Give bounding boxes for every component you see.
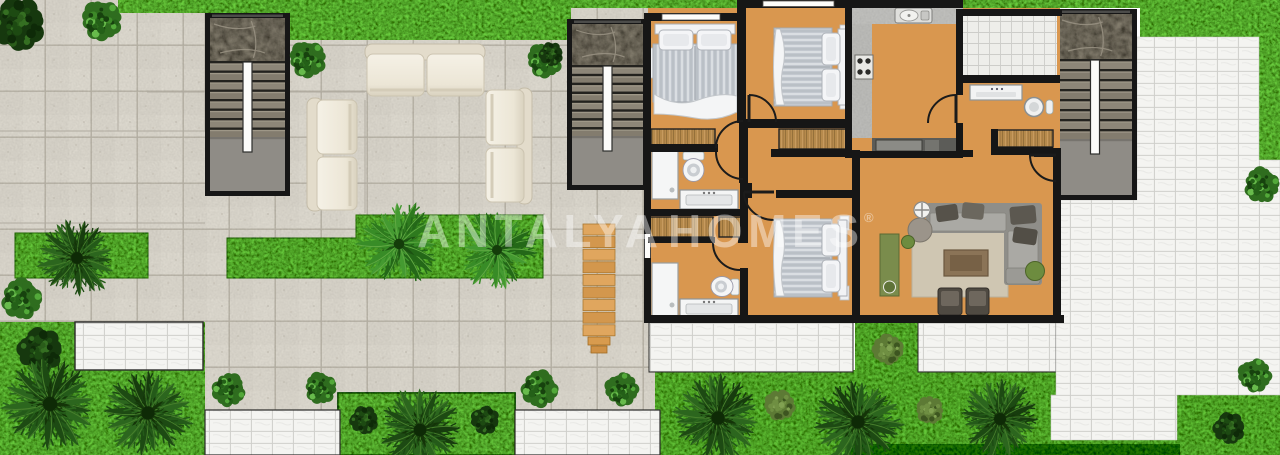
svg-text:®: ®: [864, 210, 874, 225]
svg-text:HOMES: HOMES: [668, 205, 861, 257]
